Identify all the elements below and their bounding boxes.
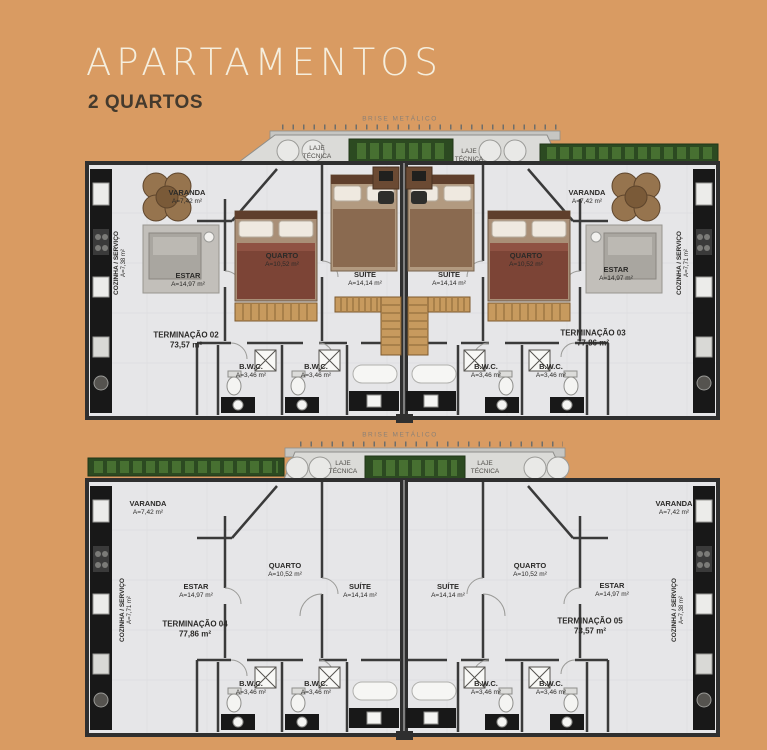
room-label-suite: SUÍTEA=14,14 m² (348, 270, 382, 288)
room-label-bwc: B.W.C.A=3,46 m² (536, 362, 566, 380)
kitchen-counter-left (90, 486, 112, 730)
room-label-cozinha: COZINHA / SERVIÇOA=7,38 m² (113, 231, 129, 295)
laje-tecnica-label-right: LAJE TÉCNICA (471, 460, 500, 476)
room-label-bwc: B.W.C.A=3,46 m² (301, 679, 331, 697)
quarto-wardrobe-right (488, 303, 570, 321)
closet-left (335, 297, 381, 312)
room-label-cozinha: COZINHA / SERVIÇOA=7,71 m² (676, 231, 692, 295)
room-label-bwc: B.W.C.A=3,46 m² (536, 679, 566, 697)
vanity-right (406, 391, 456, 411)
laje-tecnica-label-right: LAJE TÉCNICA (455, 148, 484, 164)
unit-label-terminacao-05: TERMINAÇÃO 0573,57 m² (557, 617, 622, 638)
bathtub-right (412, 365, 456, 383)
laje-tecnica-label-left: LAJE TÉCNICA (303, 145, 332, 161)
quarto-wardrobe-left (235, 303, 317, 321)
unit-label-terminacao-02: TERMINAÇÃO 0273,57 m² (153, 331, 218, 352)
floor-plan-bottom: BRISE METÁLICO LAJE TÉCNICA LAJE TÉCNICA… (85, 430, 720, 742)
kitchen-counter-right (693, 486, 715, 730)
kitchen-counter-left (90, 169, 112, 413)
bathtub-right (412, 682, 456, 700)
bathtub-left (353, 682, 397, 700)
room-label-estar: ESTARA=14,97 m² (179, 582, 213, 600)
closet-left-stem (381, 297, 401, 355)
room-label-suite: SUÍTEA=14,14 m² (432, 270, 466, 288)
floor-plan-top: BRISE METÁLICO LAJE TÉCNICA LAJE TÉCNICA… (85, 113, 720, 425)
room-label-varanda: VARANDAA=7,42 m² (569, 188, 606, 206)
brise-metalico-label: BRISE METÁLICO (362, 432, 438, 439)
laje-tecnica-label-left: LAJE TÉCNICA (329, 460, 358, 476)
bathtub-left (353, 365, 397, 383)
room-label-varanda: VARANDAA=7,42 m² (169, 188, 206, 206)
room-label-quarto: QUARTOA=10,52 m² (513, 561, 547, 579)
room-label-varanda: VARANDAA=7,42 m² (130, 499, 167, 517)
room-label-quarto: QUARTOA=10,52 m² (268, 561, 302, 579)
brise-metalico-label: BRISE METÁLICO (362, 116, 438, 123)
vanity-right (406, 708, 456, 728)
room-label-varanda: VARANDAA=7,42 m² (656, 499, 693, 517)
unit-label-terminacao-03: TERMINAÇÃO 0377,86 m² (560, 329, 625, 350)
room-label-quarto: QUARTOA=10,52 m² (509, 251, 543, 269)
room-label-bwc: B.W.C.A=3,46 m² (471, 362, 501, 380)
room-label-quarto: QUARTOA=10,52 m² (265, 251, 299, 269)
vanity-left (349, 391, 399, 411)
room-label-bwc: B.W.C.A=3,46 m² (301, 362, 331, 380)
page-subtitle: 2 QUARTOS (88, 92, 203, 114)
kitchen-counter-right (693, 169, 715, 413)
room-label-estar: ESTARA=14,97 m² (599, 265, 633, 283)
closet-right-stem (408, 297, 428, 355)
varanda-table-right (612, 173, 660, 221)
room-label-suite: SUÍTEA=14,14 m² (431, 582, 465, 600)
page: { "header": { "title": "APARTAMENTOS", "… (0, 0, 767, 750)
unit-label-terminacao-04: TERMINAÇÃO 0477,86 m² (162, 620, 227, 641)
room-label-bwc: B.W.C.A=3,46 m² (236, 362, 266, 380)
closet-right (424, 297, 470, 312)
room-label-estar: ESTARA=14,97 m² (595, 581, 629, 599)
room-label-bwc: B.W.C.A=3,46 m² (471, 679, 501, 697)
room-label-cozinha: COZINHA / SERVIÇOA=7,71 m² (119, 578, 135, 642)
room-label-estar: ESTARA=14,97 m² (171, 271, 205, 289)
page-title: APARTAMENTOS (86, 41, 443, 84)
room-label-bwc: B.W.C.A=3,46 m² (236, 679, 266, 697)
room-label-suite: SUÍTEA=14,14 m² (343, 582, 377, 600)
room-label-cozinha: COZINHA / SERVIÇOA=7,38 m² (671, 578, 687, 642)
vanity-left (349, 708, 399, 728)
